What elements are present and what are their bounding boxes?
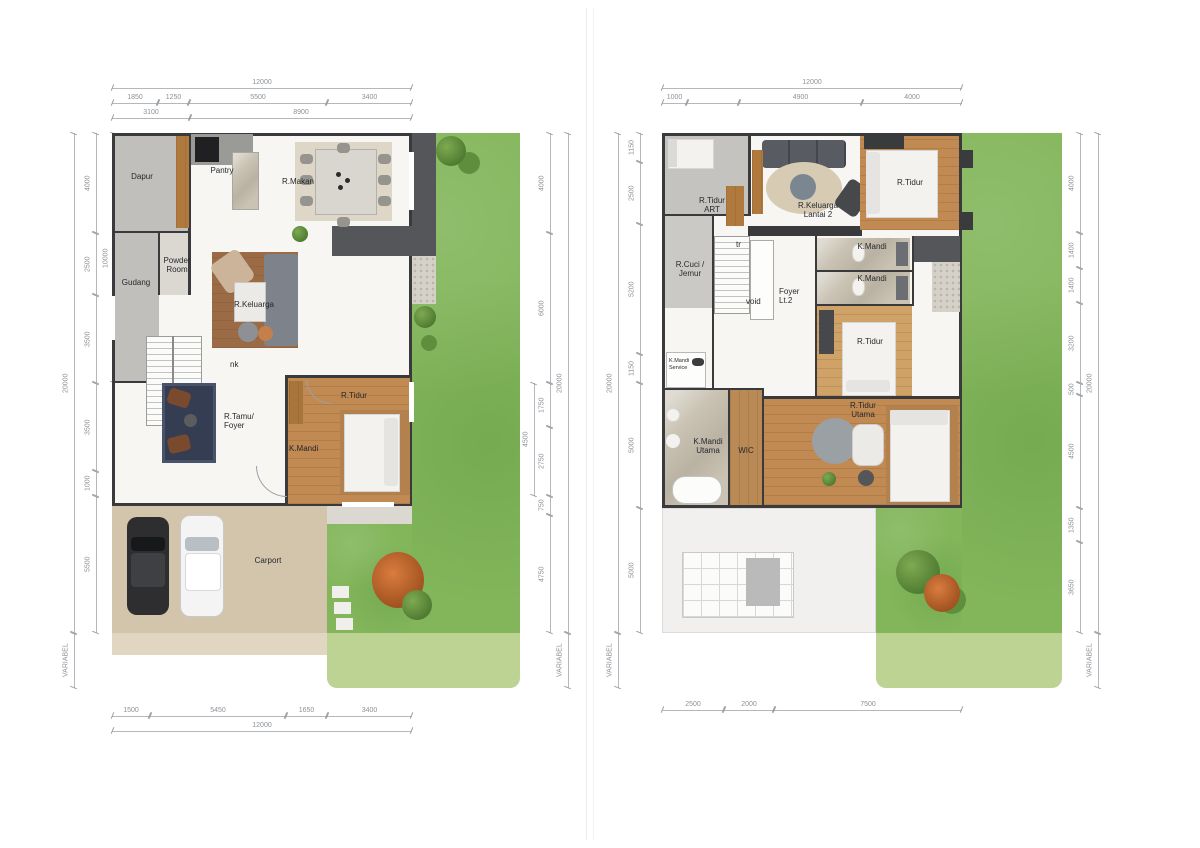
kitchen-cabinet — [176, 136, 189, 228]
dim-value: 2500 — [80, 233, 96, 295]
tv-console — [752, 150, 763, 214]
car-dark-roof — [131, 553, 165, 587]
dim-segment: 1150 — [624, 354, 641, 383]
dim-value: 5500 — [80, 496, 96, 633]
indoor-plant — [292, 226, 308, 242]
dim-segment: 5200 — [624, 224, 641, 354]
dim-segment: 1400 — [1064, 268, 1081, 303]
dim-segment: 3100 — [112, 108, 190, 119]
room-label-powder: Powder Room — [160, 256, 194, 274]
room-label-rmakan: R.Makan — [276, 177, 320, 186]
car-white-roof — [185, 553, 221, 591]
dim-segment: 1650 — [286, 706, 327, 717]
room-label-carport: Carport — [246, 556, 290, 565]
shrub — [436, 136, 466, 166]
bed-middle-pillows — [846, 380, 890, 392]
dim-value: 4750 — [534, 515, 550, 633]
basin — [666, 408, 680, 422]
dim-segment: 5500 — [189, 93, 327, 104]
dim-segment: 1000 — [80, 471, 97, 496]
planter-band — [412, 133, 436, 256]
foyer-table — [184, 414, 197, 427]
dim-total: 12000 — [112, 78, 412, 89]
planter-band — [332, 226, 412, 256]
dim-segment: 1750 — [534, 383, 551, 427]
car-dark-windshield — [131, 537, 165, 551]
dim-value: 1150 — [624, 133, 640, 162]
dim-value: 5000 — [624, 383, 640, 508]
dim-value: 4500 — [1064, 395, 1080, 508]
shrub — [402, 590, 432, 620]
dim-segment: 1850 — [112, 93, 158, 104]
dim-segment: 3400 — [327, 93, 412, 104]
dresser-dark — [819, 310, 834, 354]
dim-segment: 4000 — [80, 133, 97, 233]
dim-value: 12000 — [112, 79, 412, 87]
dim-segment: 5000 — [624, 508, 641, 633]
dim-segment: 1350 — [1064, 508, 1081, 542]
dim-variable: VARIABEL — [602, 633, 619, 688]
dim-value: 1350 — [1064, 508, 1080, 542]
dim-value: VARIABEL — [58, 633, 74, 688]
master-bed-pillows — [890, 410, 948, 425]
room-label-rtamu: R.Tamu/ Foyer — [224, 412, 270, 430]
dim-segment: 3500 — [80, 383, 97, 471]
dim-value: 4000 — [80, 133, 96, 233]
indoor-plant — [822, 472, 836, 486]
room-label-wic: WIC — [734, 446, 758, 455]
dim-segment: 1150 — [624, 133, 641, 162]
stepping-stones — [332, 586, 349, 598]
dim-segment: 7500 — [774, 700, 962, 711]
dim-value: 20000 — [1082, 133, 1098, 633]
dim-value: 1400 — [1064, 233, 1080, 268]
room-label-rtidur-utama: R.Tidur Utama — [838, 401, 888, 419]
dim-value: 3500 — [80, 383, 96, 471]
art-bed-pillow — [668, 139, 677, 167]
dim-value: 1750 — [534, 383, 550, 427]
dim-value: 20000 — [552, 133, 568, 633]
planter-band — [914, 236, 960, 262]
dim-value: 2000 — [724, 701, 774, 709]
dim-total: 20000 — [552, 133, 569, 633]
dim-value: 3500 — [80, 295, 96, 383]
dim-segment: 3650 — [1064, 542, 1081, 633]
void-shaft — [750, 240, 774, 320]
dim-segment: 1400 — [1064, 233, 1081, 268]
room-label-rcuci: R.Cuci / Jemur — [670, 260, 710, 278]
dim-total: 12000 — [112, 721, 412, 732]
dim-segment: 4750 — [534, 515, 551, 633]
room-label-rtidur-art: R.Tidur ART — [692, 196, 732, 214]
bed-front-pillows — [866, 152, 880, 214]
dim-value: 1150 — [624, 354, 640, 383]
dim-value: 5450 — [150, 707, 286, 715]
dim-value: 5500 — [189, 94, 327, 102]
dim-variable: VARIABEL — [58, 633, 75, 688]
pendant-lights — [336, 172, 341, 177]
dim-segment: 6000 — [534, 233, 551, 383]
car-white-windshield — [185, 537, 219, 551]
dim-value: VARIABEL — [1082, 633, 1098, 688]
room-label-kmandi-utama: K.Mandi Utama — [684, 437, 732, 455]
dim-segment: 5000 — [624, 383, 641, 508]
dim-value: 500 — [1064, 383, 1080, 395]
stove — [195, 137, 219, 162]
driveway — [112, 633, 327, 655]
dim-value: 2500 — [662, 701, 724, 709]
room-label-rtidur-tengah: R.Tidur — [848, 337, 892, 346]
dim-value: 1000 — [662, 94, 687, 102]
room-label-rkeluarga: R.Keluarga — [226, 300, 282, 309]
dim-variable: VARIABEL — [552, 633, 569, 688]
dim-variable: VARIABEL — [1082, 633, 1099, 688]
side-table-round — [258, 326, 273, 341]
vanity — [896, 242, 908, 266]
dim-value: 3200 — [1064, 303, 1080, 383]
dim-value: 5200 — [624, 224, 640, 354]
dim-value: 4000 — [534, 133, 550, 233]
dim-value: 2750 — [534, 427, 550, 496]
skylight-panel — [746, 558, 780, 606]
dim-value: 20000 — [602, 133, 618, 633]
stairs-direction-label: tr — [736, 240, 750, 249]
dim-value: 8900 — [190, 109, 412, 117]
wall — [748, 133, 751, 216]
dim-segment: 1000 — [662, 93, 687, 104]
wardrobe — [289, 381, 303, 424]
room-label-void: void — [746, 297, 774, 306]
dim-value: 7500 — [774, 701, 962, 709]
dim-value: 4900 — [739, 94, 862, 102]
room-label-dapur: Dapur — [122, 172, 162, 181]
dim-segment: 3400 — [327, 706, 412, 717]
dim-value: 12000 — [662, 79, 962, 87]
room-label-rtidur: R.Tidur — [334, 391, 374, 400]
dim-value: 4000 — [862, 94, 962, 102]
dim-segment: 3500 — [80, 295, 97, 383]
dim-value: 1250 — [158, 94, 189, 102]
dim-value: 4000 — [1064, 133, 1080, 233]
pantry-island — [232, 152, 259, 210]
garden-variable-strip — [876, 633, 1062, 688]
stairs-direction-label: nk — [230, 360, 246, 369]
dim-segment — [687, 93, 739, 104]
dim-value: 3400 — [327, 94, 412, 102]
bathtub — [672, 476, 722, 504]
coffee-table-round — [790, 174, 816, 200]
dim-value: 750 — [534, 496, 550, 515]
pebble-strip — [412, 256, 436, 304]
dim-segment: 1250 — [158, 93, 189, 104]
window — [409, 152, 414, 210]
room-label-pantry: Pantry — [205, 166, 239, 175]
dim-total: 20000 — [602, 133, 619, 633]
dim-segment: 4900 — [739, 93, 862, 104]
dim-group: 4500 — [518, 383, 535, 496]
shrub — [414, 306, 436, 328]
dim-segment: 2750 — [534, 427, 551, 496]
floorplan-page: 12000 1850 1250 5500 3400 3100 8900 1500… — [0, 0, 1200, 848]
dim-value: 4500 — [518, 383, 534, 496]
vanity — [896, 276, 908, 300]
dim-value: 6000 — [534, 233, 550, 383]
ledge — [959, 212, 973, 230]
side-table-dark — [858, 470, 874, 486]
room-label-foyer-lt2: Foyer Lt.2 — [779, 287, 809, 305]
dim-segment: 4000 — [862, 93, 962, 104]
sheet-divider — [586, 8, 587, 840]
dim-value: 12000 — [112, 722, 412, 730]
window — [110, 296, 115, 340]
dim-segment: 5500 — [80, 496, 97, 633]
wall — [112, 231, 190, 233]
ottoman — [238, 322, 258, 342]
dim-segment: 4000 — [534, 133, 551, 233]
room-label-rkeluarga-lt2: R.Keluarga Lantai 2 — [786, 201, 850, 219]
dim-value: 2500 — [624, 162, 640, 224]
dim-value: 5000 — [624, 508, 640, 633]
wardrobe-dark — [864, 136, 904, 149]
room-label-gudang: Gudang — [114, 278, 158, 287]
dim-segment: 750 — [534, 496, 551, 515]
lounge-chair-light — [852, 424, 884, 466]
dim-value: VARIABEL — [602, 633, 618, 688]
dim-segment: 8900 — [190, 108, 412, 119]
dim-value: 1000 — [80, 471, 96, 496]
dim-total: 20000 — [58, 133, 75, 633]
room-label-kmandi1: K.Mandi — [850, 242, 894, 251]
dim-segment: 500 — [1064, 383, 1081, 395]
dim-value: 1850 — [112, 94, 158, 102]
dim-segment: 4000 — [1064, 133, 1081, 233]
wall — [748, 226, 862, 236]
dim-segment: 4500 — [1064, 395, 1081, 508]
garden-variable-strip — [327, 633, 520, 688]
dim-segment: 2500 — [662, 700, 724, 711]
shrub-orange — [924, 574, 960, 612]
garden-side — [962, 133, 1062, 633]
dim-segment: 2000 — [724, 700, 774, 711]
sheet-divider — [593, 8, 594, 840]
dim-segment: 5450 — [150, 706, 286, 717]
dim-value: 1650 — [286, 707, 327, 715]
dining-table — [315, 149, 377, 215]
dim-value: 1500 — [112, 707, 150, 715]
window — [409, 382, 414, 422]
dim-segment: 2500 — [80, 233, 97, 295]
room-label-kmandi-service: K.Mandi Service — [669, 358, 695, 371]
dim-value: 1400 — [1064, 268, 1080, 303]
dining-chairs — [300, 154, 313, 164]
dim-value: VARIABEL — [552, 633, 568, 688]
room-label-rtidur-depan: R.Tidur — [888, 178, 932, 187]
bed-pillows — [384, 418, 398, 486]
dim-value: 3400 — [327, 707, 412, 715]
ledge — [959, 150, 973, 168]
dim-segment: 2500 — [624, 162, 641, 224]
dim-value: 3650 — [1064, 542, 1080, 633]
dim-value: 20000 — [58, 133, 74, 633]
room-label-kmandi2: K.Mandi — [850, 274, 894, 283]
room-label-kmandi: K.Mandi — [289, 444, 329, 453]
pebble-strip — [932, 262, 960, 312]
dim-total: 12000 — [662, 78, 962, 89]
dim-total: 20000 — [1082, 133, 1099, 633]
dim-segment: 3200 — [1064, 303, 1081, 383]
dim-value: 3100 — [112, 109, 190, 117]
window — [342, 502, 394, 507]
dim-segment: 1500 — [112, 706, 150, 717]
